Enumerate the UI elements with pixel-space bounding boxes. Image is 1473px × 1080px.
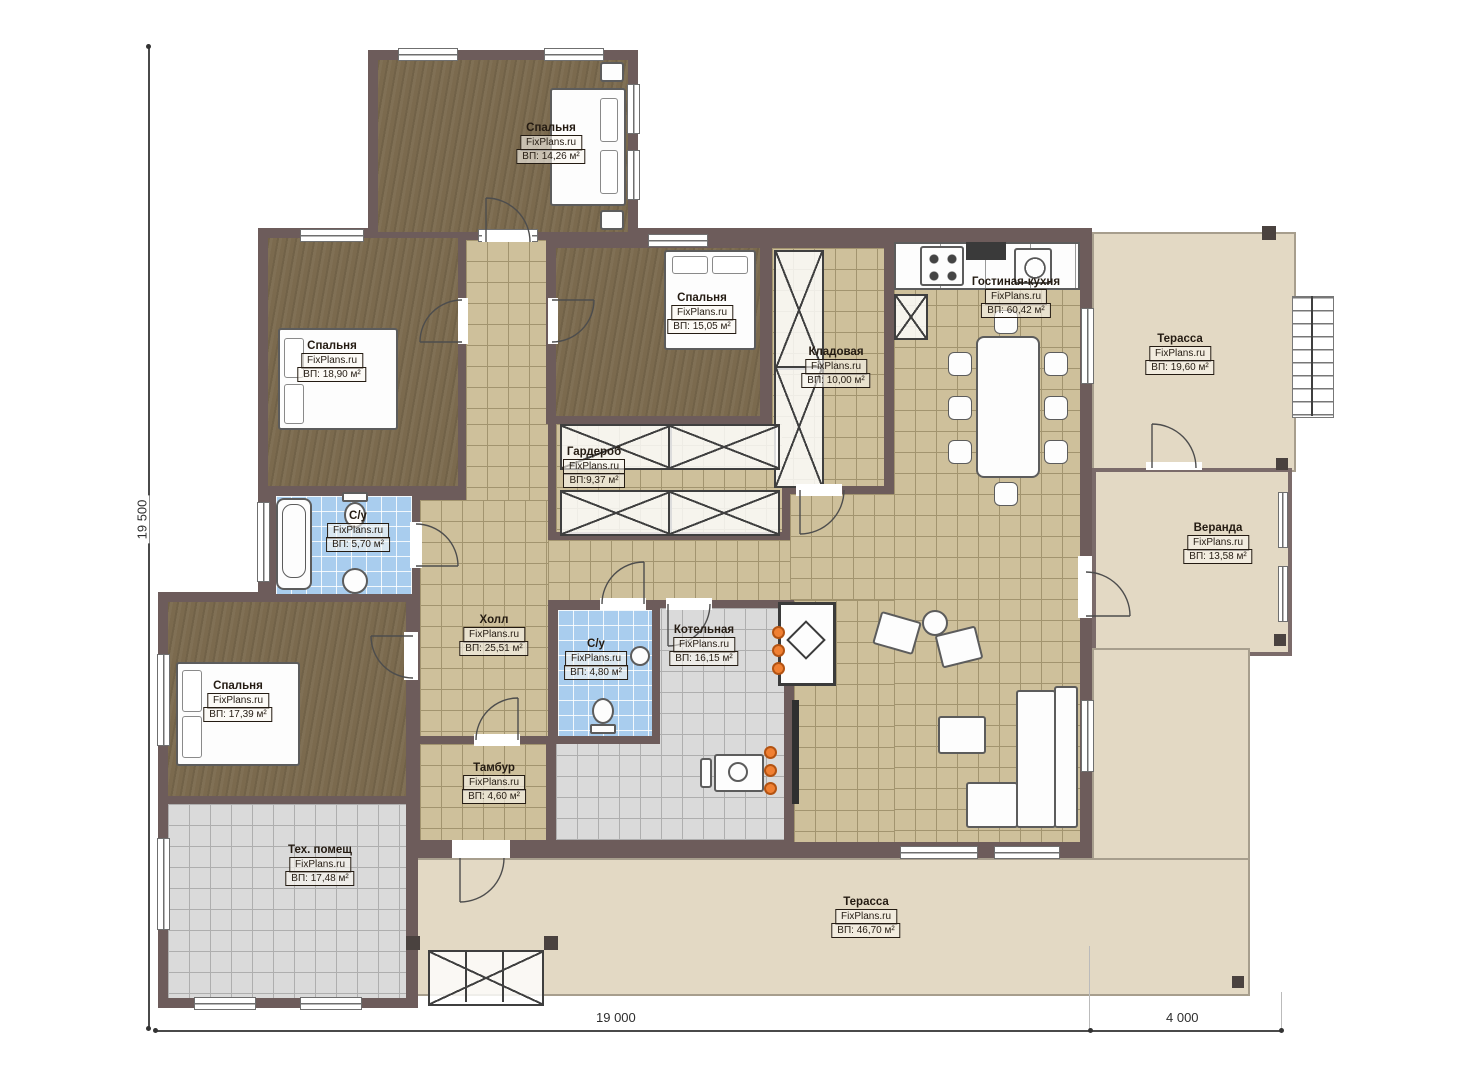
terrace-right-deck [1092, 648, 1250, 862]
dim-end-marker [146, 1026, 151, 1031]
heating-dot [772, 662, 785, 675]
dining-table [976, 336, 1040, 478]
label-bedroom-left: Спальня FixPlans.ru ВП: 18,90 м² [297, 340, 366, 382]
room-area: ВП:9,37 м² [563, 473, 624, 489]
fridge-icon [894, 294, 928, 340]
dimension-line-bottom-right [1090, 1030, 1282, 1032]
door-opening [474, 734, 520, 746]
step-divider [502, 950, 504, 1002]
label-bedroom-lowleft: Спальня FixPlans.ru ВП: 17,39 м² [203, 680, 272, 722]
toilet-icon [342, 492, 368, 502]
door-opening [600, 598, 646, 610]
stove-icon [920, 246, 964, 286]
step-divider [465, 950, 467, 1002]
dimension-label-left: 19 500 [134, 496, 149, 544]
label-storage: Кладовая FixPlans.ru ВП: 10,00 м² [801, 346, 870, 388]
window [194, 997, 256, 1010]
window [157, 838, 170, 930]
door-opening [796, 484, 842, 496]
room-name: Спальня [677, 292, 727, 304]
room-name: Кладовая [808, 346, 863, 358]
room-area: ВП: 4,60 м² [462, 789, 526, 805]
dimension-line-bottom-main [155, 1030, 1090, 1032]
room-name: С/у [349, 510, 367, 522]
room-area: ВП: 13,58 м² [1183, 549, 1252, 565]
door-opening [1078, 556, 1092, 618]
dimension-label-bottom-main: 19 000 [592, 1010, 640, 1025]
boiler-unit [700, 758, 712, 788]
nightstand-icon [600, 62, 624, 82]
hall-strip [548, 540, 790, 600]
hall-corridor-top [466, 240, 546, 424]
toilet-bowl [592, 698, 614, 724]
room-name: Терасса [1157, 333, 1203, 345]
room-name: Веранда [1194, 522, 1243, 534]
nightstand-icon [600, 210, 624, 230]
post [1262, 226, 1276, 240]
label-living-kitchen: Гостиная-кухня FixPlans.ru ВП: 60,42 м² [972, 276, 1060, 318]
pillow-icon [182, 716, 202, 758]
coffee-table-icon [938, 716, 986, 754]
wardrobe-icon [668, 490, 780, 536]
hall-east [790, 494, 894, 600]
door-opening [1146, 462, 1202, 470]
room-area: ВП: 18,90 м² [297, 367, 366, 383]
room-area: ВП: 15,05 м² [667, 319, 736, 335]
post [1276, 458, 1288, 470]
boiler-pump [728, 762, 748, 782]
label-tech: Тех. помещ FixPlans.ru ВП: 17,48 м² [285, 844, 354, 886]
heating-dot [764, 746, 777, 759]
label-bath-top: С/у FixPlans.ru ВП: 5,70 м² [326, 510, 390, 552]
door-opening [410, 522, 422, 568]
door-opening [458, 298, 468, 344]
dim-extension [1089, 946, 1090, 1030]
washbasin-icon [630, 646, 650, 666]
door-opening [666, 598, 712, 610]
room-name: Спальня [213, 680, 263, 692]
room-name: С/у [587, 638, 605, 650]
chair-icon [994, 482, 1018, 506]
heating-dot [772, 626, 785, 639]
label-vestibule: Тамбур FixPlans.ru ВП: 4,60 м² [462, 762, 526, 804]
room-name: Котельная [674, 624, 734, 636]
hood-icon [966, 242, 1006, 260]
side-table-icon [922, 610, 948, 636]
room-area: ВП: 17,48 м² [285, 871, 354, 887]
window [900, 846, 978, 859]
label-boiler: Котельная FixPlans.ru ВП: 16,15 м² [669, 624, 738, 666]
post [544, 936, 558, 950]
dim-end-marker [1088, 1028, 1093, 1033]
dim-extension [1281, 992, 1282, 1030]
room-name: Тамбур [473, 762, 515, 774]
label-hall: Холл FixPlans.ru ВП: 25,51 м² [459, 614, 528, 656]
door-opening [548, 298, 558, 344]
toilet-icon [590, 724, 616, 734]
dim-end-marker [153, 1028, 158, 1033]
heating-dot [764, 782, 777, 795]
window [1081, 308, 1094, 384]
label-bath-bottom: С/у FixPlans.ru ВП: 4,80 м² [564, 638, 628, 680]
room-name: Гардероб [567, 446, 621, 458]
label-terrace-bottom: Терасса FixPlans.ru ВП: 46,70 м² [831, 896, 900, 938]
chair-icon [948, 352, 972, 376]
window [994, 846, 1060, 859]
pillow-icon [600, 150, 618, 194]
room-name: Спальня [307, 340, 357, 352]
window [300, 229, 364, 242]
pillow-icon [182, 670, 202, 712]
bathtub-inner [282, 504, 306, 578]
heating-dot [764, 764, 777, 777]
post [406, 936, 420, 950]
hall-mid-a [466, 424, 548, 500]
room-area: ВП: 46,70 м² [831, 923, 900, 939]
porch-steps [428, 950, 544, 1006]
wardrobe-icon [668, 424, 780, 470]
window [627, 84, 640, 134]
floor-plan: Спальня FixPlans.ru ВП: 14,26 м² Спальня… [0, 0, 1473, 1080]
pillow-icon [672, 256, 708, 274]
window [648, 234, 708, 247]
window [157, 654, 170, 746]
window [300, 997, 362, 1010]
dim-end-marker [146, 44, 151, 49]
room-area: ВП: 4,80 м² [564, 665, 628, 681]
chair-icon [1044, 440, 1068, 464]
room-area: ВП: 60,42 м² [981, 303, 1050, 319]
room-tech [168, 804, 406, 998]
room-name: Терасса [843, 896, 889, 908]
window [544, 48, 604, 61]
post [1274, 634, 1286, 646]
window [1278, 566, 1288, 622]
window [627, 150, 640, 200]
room-name: Холл [480, 614, 509, 626]
room-area: ВП: 14,26 м² [516, 149, 585, 165]
window [398, 48, 458, 61]
room-area: ВП: 5,70 м² [326, 537, 390, 553]
pillow-icon [284, 384, 304, 424]
exterior-stairs [1292, 296, 1334, 418]
tv-icon [792, 700, 799, 804]
post [1232, 976, 1244, 988]
label-veranda: Веранда FixPlans.ru ВП: 13,58 м² [1183, 522, 1252, 564]
sofa-back [1054, 686, 1078, 828]
stair-rail [1311, 296, 1313, 416]
room-area: ВП: 10,00 м² [801, 373, 870, 389]
chair-icon [948, 440, 972, 464]
pillow-icon [712, 256, 748, 274]
sofa-seat [1016, 690, 1056, 828]
wardrobe-icon [560, 490, 672, 536]
chair-icon [1044, 352, 1068, 376]
room-name: Спальня [526, 122, 576, 134]
door-opening [482, 232, 532, 242]
window [257, 502, 270, 582]
label-wardrobe: Гардероб FixPlans.ru ВП:9,37 м² [563, 446, 625, 488]
window [1278, 492, 1288, 548]
window [1081, 700, 1094, 772]
dimension-label-bottom-right: 4 000 [1162, 1010, 1203, 1025]
door-opening [404, 632, 418, 680]
room-area: ВП: 19,60 м² [1145, 360, 1214, 376]
chair-icon [948, 396, 972, 420]
dim-end-marker [1279, 1028, 1284, 1033]
pillow-icon [600, 98, 618, 142]
label-bedroom-mid: Спальня FixPlans.ru ВП: 15,05 м² [667, 292, 736, 334]
chair-icon [1044, 396, 1068, 420]
door-opening [452, 840, 510, 858]
label-bedroom-top: Спальня FixPlans.ru ВП: 14,26 м² [516, 122, 585, 164]
room-area: ВП: 17,39 м² [203, 707, 272, 723]
room-name: Тех. помещ [288, 844, 352, 856]
label-terrace-top: Терасса FixPlans.ru ВП: 19,60 м² [1145, 333, 1214, 375]
room-name: Гостиная-кухня [972, 276, 1060, 288]
room-area: ВП: 16,15 м² [669, 651, 738, 667]
room-area: ВП: 25,51 м² [459, 641, 528, 657]
washbasin-icon [342, 568, 368, 594]
heating-dot [772, 644, 785, 657]
sofa-chaise [966, 782, 1018, 828]
